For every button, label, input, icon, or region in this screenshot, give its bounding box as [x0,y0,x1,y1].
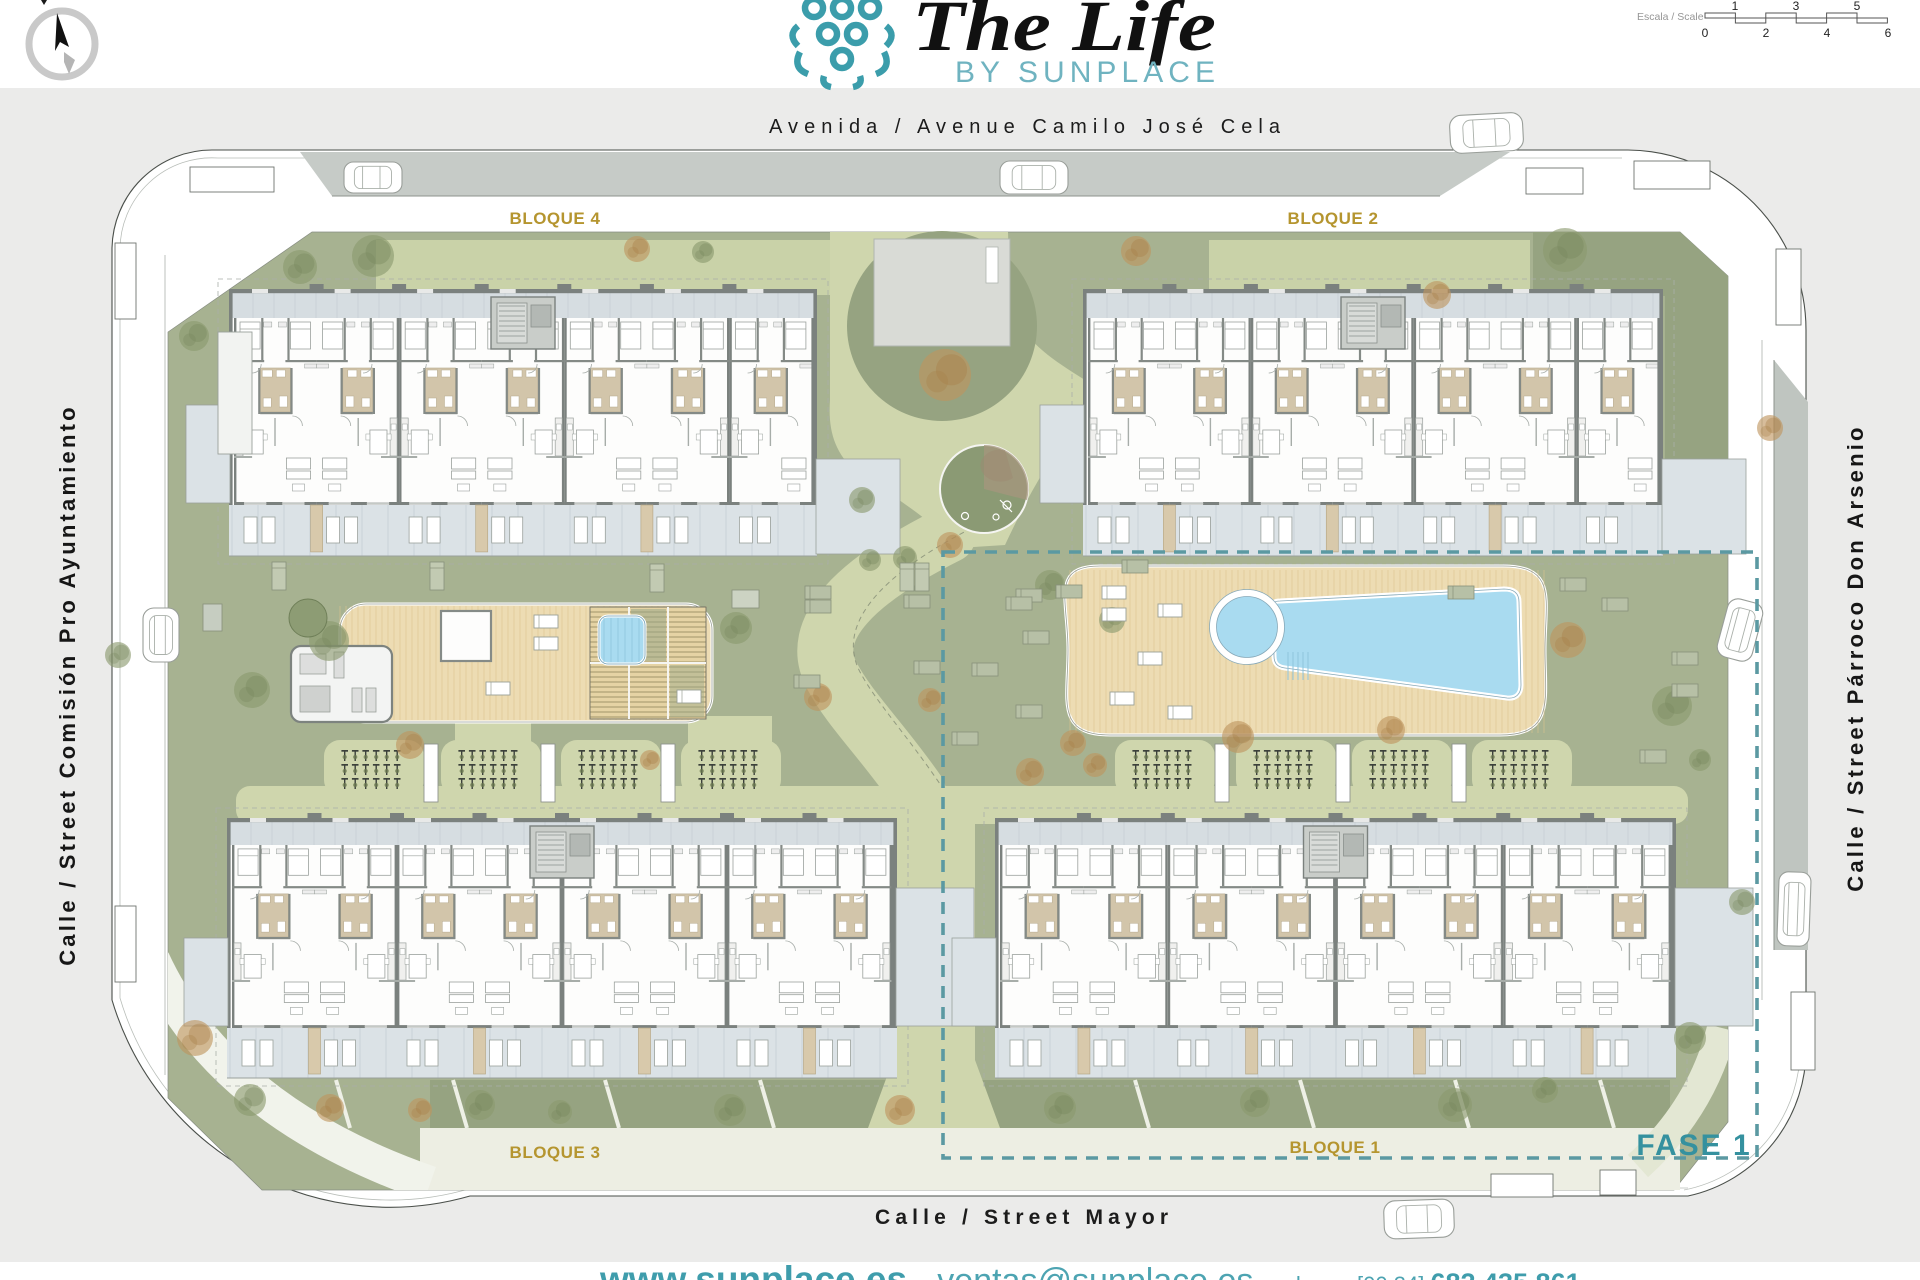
svg-text:4: 4 [1824,26,1831,40]
svg-text:BLOQUE 3: BLOQUE 3 [510,1143,601,1162]
svg-text:FASE 1: FASE 1 [1636,1129,1751,1162]
svg-text:3: 3 [1793,0,1800,13]
svg-text:6: 6 [1885,26,1892,40]
svg-text:Calle / Street Comisión Pro Ay: Calle / Street Comisión Pro Ayuntamiento [55,404,80,966]
svg-text:Escala / Scale: Escala / Scale [1637,11,1704,23]
svg-text:Calle / Street Párroco Don Ars: Calle / Street Párroco Don Arsenio [1843,424,1868,891]
svg-text:1: 1 [1732,0,1739,13]
svg-text:BY SUNPLACE: BY SUNPLACE [955,56,1215,89]
svg-text:BLOQUE 1: BLOQUE 1 [1290,1138,1381,1157]
svg-text:BLOQUE 4: BLOQUE 4 [510,209,601,228]
svg-text:2: 2 [1763,26,1770,40]
svg-text:5: 5 [1854,0,1861,13]
svg-text:0: 0 [1702,26,1709,40]
svg-text:BLOQUE 2: BLOQUE 2 [1288,209,1379,228]
